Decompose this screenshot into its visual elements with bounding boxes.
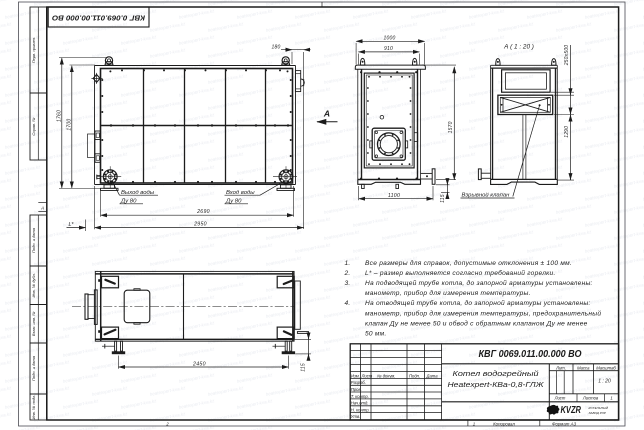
svg-text:heatexpert-kva.kz: heatexpert-kva.kz (526, 112, 563, 124)
svg-text:Лист: Лист (361, 373, 373, 378)
svg-text:heatexpert-kva.kz: heatexpert-kva.kz (410, 112, 447, 124)
svg-text:heatexpert-kva.kz: heatexpert-kva.kz (584, 164, 621, 176)
svg-text:Т. контр.: Т. контр. (351, 394, 369, 399)
svg-text:heatexpert-kva.kz: heatexpert-kva.kz (584, 34, 621, 46)
svg-text:heatexpert-kva.kz: heatexpert-kva.kz (410, 8, 447, 20)
svg-text:heatexpert-kva.kz: heatexpert-kva.kz (323, 125, 360, 137)
svg-text:heatexpert-kva.kz: heatexpert-kva.kz (0, 411, 12, 423)
svg-text:heatexpert-kva.kz: heatexpert-kva.kz (410, 60, 447, 72)
svg-text:heatexpert-kva.kz: heatexpert-kva.kz (4, 216, 41, 228)
svg-text:heatexpert-kva.kz: heatexpert-kva.kz (526, 164, 563, 176)
svg-text:2950: 2950 (193, 222, 207, 228)
svg-text:heatexpert-kva.kz: heatexpert-kva.kz (584, 112, 621, 124)
svg-text:heatexpert-kva.kz: heatexpert-kva.kz (323, 229, 360, 241)
svg-text:heatexpert-kva.kz: heatexpert-kva.kz (381, 21, 418, 33)
svg-text:heatexpert-kva.kz: heatexpert-kva.kz (33, 99, 70, 111)
svg-text:heatexpert-kva.kz: heatexpert-kva.kz (236, 372, 273, 384)
svg-text:heatexpert-kva.kz: heatexpert-kva.kz (149, 385, 186, 397)
svg-text:50 мм.: 50 мм. (365, 330, 387, 337)
svg-text:heatexpert-kva.kz: heatexpert-kva.kz (352, 216, 389, 228)
svg-text:Утв.: Утв. (351, 414, 361, 419)
svg-text:heatexpert-kva.kz: heatexpert-kva.kz (584, 8, 621, 20)
svg-text:heatexpert-kva.kz: heatexpert-kva.kz (62, 164, 99, 176)
svg-text:heatexpert-kva.kz: heatexpert-kva.kz (207, 47, 244, 59)
svg-text:heatexpert-kva.kz: heatexpert-kva.kz (33, 47, 70, 59)
svg-text:heatexpert-kva.kz: heatexpert-kva.kz (178, 34, 215, 46)
svg-text:heatexpert-kva.kz: heatexpert-kva.kz (584, 268, 621, 280)
svg-text:heatexpert-kva.kz: heatexpert-kva.kz (526, 190, 563, 202)
svg-text:heatexpert-kva.kz: heatexpert-kva.kz (0, 385, 12, 397)
svg-text:heatexpert-kva.kz: heatexpert-kva.kz (236, 34, 273, 46)
svg-text:heatexpert-kva.kz: heatexpert-kva.kz (149, 21, 186, 33)
svg-text:heatexpert-kva.kz: heatexpert-kva.kz (120, 34, 157, 46)
svg-text:heatexpert-kva.kz: heatexpert-kva.kz (323, 151, 360, 163)
svg-text:Н. контр.: Н. контр. (351, 407, 370, 412)
svg-text:heatexpert-kva.kz: heatexpert-kva.kz (236, 242, 273, 254)
svg-text:heatexpert-kva.kz: heatexpert-kva.kz (207, 255, 244, 267)
svg-text:heatexpert-kva.kz: heatexpert-kva.kz (323, 281, 360, 293)
svg-text:heatexpert-kva.kz: heatexpert-kva.kz (410, 242, 447, 254)
svg-text:heatexpert-kva.kz: heatexpert-kva.kz (381, 385, 418, 397)
svg-text:heatexpert-kva.kz: heatexpert-kva.kz (410, 138, 447, 150)
svg-text:heatexpert-kva.kz: heatexpert-kva.kz (62, 86, 99, 98)
svg-text:heatexpert-kva.kz: heatexpert-kva.kz (207, 0, 244, 7)
svg-text:180: 180 (272, 45, 281, 51)
svg-text:heatexpert-kva.kz: heatexpert-kva.kz (468, 112, 505, 124)
svg-text:heatexpert-kva.kz: heatexpert-kva.kz (178, 112, 215, 124)
svg-text:heatexpert-kva.kz: heatexpert-kva.kz (149, 255, 186, 267)
svg-text:heatexpert-kva.kz: heatexpert-kva.kz (294, 34, 331, 46)
svg-text:heatexpert-kva.kz: heatexpert-kva.kz (294, 138, 331, 150)
svg-text:heatexpert-kva.kz: heatexpert-kva.kz (4, 8, 41, 20)
svg-text:heatexpert-kva.kz: heatexpert-kva.kz (62, 190, 99, 202)
svg-text:heatexpert-kva.kz: heatexpert-kva.kz (149, 47, 186, 59)
svg-text:heatexpert-kva.kz: heatexpert-kva.kz (497, 125, 534, 137)
svg-text:heatexpert-kva.kz: heatexpert-kva.kz (555, 229, 592, 241)
svg-text:heatexpert-kva.kz: heatexpert-kva.kz (497, 229, 534, 241)
svg-text:heatexpert-kva.kz: heatexpert-kva.kz (0, 73, 12, 85)
svg-text:heatexpert-kva.kz: heatexpert-kva.kz (439, 47, 476, 59)
svg-text:heatexpert-kva.kz: heatexpert-kva.kz (149, 125, 186, 137)
svg-text:heatexpert-kva.kz: heatexpert-kva.kz (555, 47, 592, 59)
svg-text:heatexpert-kva.kz: heatexpert-kva.kz (265, 411, 302, 423)
svg-text:heatexpert-kva.kz: heatexpert-kva.kz (236, 138, 273, 150)
svg-text:heatexpert-kva.kz: heatexpert-kva.kz (265, 255, 302, 267)
svg-text:heatexpert-kva.kz: heatexpert-kva.kz (91, 203, 128, 215)
svg-text:heatexpert-kva.kz: heatexpert-kva.kz (410, 424, 447, 430)
svg-text:heatexpert-kva.kz: heatexpert-kva.kz (62, 60, 99, 72)
svg-text:heatexpert-kva.kz: heatexpert-kva.kz (4, 424, 41, 430)
svg-text:heatexpert-kva.kz: heatexpert-kva.kz (149, 151, 186, 163)
svg-text:1 : 20: 1 : 20 (598, 379, 611, 385)
svg-text:2690: 2690 (196, 209, 210, 215)
svg-text:клапан Ду не менее 50 и обвод: клапан Ду не менее 50 и обвод с обратным… (365, 319, 588, 327)
svg-text:heatexpert-kva.kz: heatexpert-kva.kz (236, 8, 273, 20)
svg-text:heatexpert-kva.kz: heatexpert-kva.kz (33, 281, 70, 293)
svg-text:heatexpert-kva.kz: heatexpert-kva.kz (207, 359, 244, 371)
svg-text:heatexpert-kva.kz: heatexpert-kva.kz (381, 125, 418, 137)
svg-text:heatexpert-kva.kz: heatexpert-kva.kz (0, 281, 12, 293)
svg-text:heatexpert-kva.kz: heatexpert-kva.kz (0, 0, 12, 7)
svg-text:ЗАВОД РЗР: ЗАВОД РЗР (589, 411, 607, 415)
svg-text:heatexpert-kva.kz: heatexpert-kva.kz (0, 125, 12, 137)
svg-text:Взам. инв. №: Взам. инв. № (31, 311, 36, 336)
svg-text:heatexpert-kva.kz: heatexpert-kva.kz (120, 346, 157, 358)
svg-text:heatexpert-kva.kz: heatexpert-kva.kz (294, 268, 331, 280)
svg-text:heatexpert-kva.kz: heatexpert-kva.kz (178, 60, 215, 72)
svg-text:heatexpert-kva.kz: heatexpert-kva.kz (120, 60, 157, 72)
svg-text:heatexpert-kva.kz: heatexpert-kva.kz (4, 164, 41, 176)
svg-text:heatexpert-kva.kz: heatexpert-kva.kz (497, 151, 534, 163)
svg-text:heatexpert-kva.kz: heatexpert-kva.kz (149, 281, 186, 293)
svg-text:heatexpert-kva.kz: heatexpert-kva.kz (323, 203, 360, 215)
svg-text:heatexpert-kva.kz: heatexpert-kva.kz (584, 86, 621, 98)
svg-text:heatexpert-kva.kz: heatexpert-kva.kz (410, 34, 447, 46)
svg-text:Масса: Масса (577, 365, 590, 370)
svg-text:heatexpert-kva.kz: heatexpert-kva.kz (265, 203, 302, 215)
svg-text:Разраб.: Разраб. (351, 380, 366, 385)
svg-text:heatexpert-kva.kz: heatexpert-kva.kz (584, 346, 621, 358)
svg-text:heatexpert-kva.kz: heatexpert-kva.kz (323, 21, 360, 33)
svg-text:На подводящей трубе котла, до: На подводящей трубе котла, до запорной а… (365, 279, 593, 287)
svg-text:heatexpert-kva.kz: heatexpert-kva.kz (120, 294, 157, 306)
svg-text:heatexpert-kva.kz: heatexpert-kva.kz (439, 125, 476, 137)
svg-text:heatexpert-kva.kz: heatexpert-kva.kz (584, 190, 621, 202)
svg-text:heatexpert-kva.kz: heatexpert-kva.kz (294, 190, 331, 202)
svg-text:heatexpert-kva.kz: heatexpert-kva.kz (120, 424, 157, 430)
svg-text:heatexpert-kva.kz: heatexpert-kva.kz (468, 216, 505, 228)
svg-text:heatexpert-kva.kz: heatexpert-kva.kz (120, 372, 157, 384)
svg-text:heatexpert-kva.kz: heatexpert-kva.kz (4, 86, 41, 98)
svg-text:heatexpert-kva.kz: heatexpert-kva.kz (236, 346, 273, 358)
svg-text:heatexpert-kva.kz: heatexpert-kva.kz (352, 424, 389, 430)
svg-text:Лист: Лист (554, 395, 566, 400)
svg-text:Нач.отд.: Нач.отд. (351, 401, 369, 406)
svg-text:heatexpert-kva.kz: heatexpert-kva.kz (236, 216, 273, 228)
svg-text:heatexpert-kva.kz: heatexpert-kva.kz (555, 151, 592, 163)
svg-text:heatexpert-kva.kz: heatexpert-kva.kz (62, 398, 99, 410)
svg-text:L*: L* (68, 222, 74, 228)
svg-text:heatexpert-kva.kz: heatexpert-kva.kz (381, 99, 418, 111)
svg-text:3.: 3. (345, 280, 351, 287)
svg-text:Heatexpert-КВа-0,8-ГЛЖ: Heatexpert-КВа-0,8-ГЛЖ (448, 380, 545, 389)
svg-text:heatexpert-kva.kz: heatexpert-kva.kz (381, 0, 418, 7)
svg-text:heatexpert-kva.kz: heatexpert-kva.kz (120, 398, 157, 410)
svg-text:heatexpert-kva.kz: heatexpert-kva.kz (352, 190, 389, 202)
svg-text:heatexpert-kva.kz: heatexpert-kva.kz (381, 359, 418, 371)
svg-text:heatexpert-kva.kz: heatexpert-kva.kz (178, 372, 215, 384)
svg-text:манометр, прибор для измерения: манометр, прибор для измерения температу… (365, 289, 531, 297)
svg-text:heatexpert-kva.kz: heatexpert-kva.kz (0, 47, 12, 59)
svg-text:heatexpert-kva.kz: heatexpert-kva.kz (149, 0, 186, 7)
svg-text:А: А (40, 206, 44, 211)
svg-text:heatexpert-kva.kz: heatexpert-kva.kz (555, 203, 592, 215)
svg-text:heatexpert-kva.kz: heatexpert-kva.kz (33, 385, 70, 397)
svg-text:heatexpert-kva.kz: heatexpert-kva.kz (120, 138, 157, 150)
svg-text:heatexpert-kva.kz: heatexpert-kva.kz (149, 99, 186, 111)
svg-text:heatexpert-kva.kz: heatexpert-kva.kz (410, 216, 447, 228)
svg-text:heatexpert-kva.kz: heatexpert-kva.kz (91, 99, 128, 111)
svg-text:heatexpert-kva.kz: heatexpert-kva.kz (0, 307, 12, 319)
svg-text:heatexpert-kva.kz: heatexpert-kva.kz (468, 8, 505, 20)
svg-text:heatexpert-kva.kz: heatexpert-kva.kz (62, 346, 99, 358)
svg-text:Пров.: Пров. (351, 387, 362, 392)
svg-text:heatexpert-kva.kz: heatexpert-kva.kz (468, 242, 505, 254)
svg-text:КВГ 0069.011.00.000 ВО: КВГ 0069.011.00.000 ВО (479, 349, 582, 360)
svg-text:heatexpert-kva.kz: heatexpert-kva.kz (207, 385, 244, 397)
svg-text:heatexpert-kva.kz: heatexpert-kva.kz (62, 372, 99, 384)
svg-text:heatexpert-kva.kz: heatexpert-kva.kz (439, 229, 476, 241)
svg-text:heatexpert-kva.kz: heatexpert-kva.kz (555, 21, 592, 33)
svg-text:heatexpert-kva.kz: heatexpert-kva.kz (584, 320, 621, 332)
svg-text:Листов: Листов (582, 395, 599, 400)
svg-text:heatexpert-kva.kz: heatexpert-kva.kz (33, 411, 70, 423)
svg-text:heatexpert-kva.kz: heatexpert-kva.kz (120, 86, 157, 98)
svg-text:КОТЕЛЬНЫЙ: КОТЕЛЬНЫЙ (589, 406, 609, 410)
svg-text:heatexpert-kva.kz: heatexpert-kva.kz (33, 359, 70, 371)
svg-text:heatexpert-kva.kz: heatexpert-kva.kz (149, 307, 186, 319)
svg-text:heatexpert-kva.kz: heatexpert-kva.kz (236, 320, 273, 332)
svg-text:heatexpert-kva.kz: heatexpert-kva.kz (236, 424, 273, 430)
svg-text:heatexpert-kva.kz: heatexpert-kva.kz (410, 164, 447, 176)
svg-text:heatexpert-kva.kz: heatexpert-kva.kz (555, 125, 592, 137)
svg-text:1000: 1000 (384, 36, 396, 42)
svg-text:heatexpert-kva.kz: heatexpert-kva.kz (265, 0, 302, 7)
svg-text:heatexpert-kva.kz: heatexpert-kva.kz (526, 216, 563, 228)
svg-text:heatexpert-kva.kz: heatexpert-kva.kz (0, 21, 12, 33)
svg-text:heatexpert-kva.kz: heatexpert-kva.kz (439, 0, 476, 7)
svg-text:heatexpert-kva.kz: heatexpert-kva.kz (584, 216, 621, 228)
svg-text:heatexpert-kva.kz: heatexpert-kva.kz (555, 177, 592, 189)
svg-text:Выход воды: Выход воды (121, 190, 155, 196)
svg-text:heatexpert-kva.kz: heatexpert-kva.kz (265, 229, 302, 241)
svg-text:heatexpert-kva.kz: heatexpert-kva.kz (178, 138, 215, 150)
svg-text:heatexpert-kva.kz: heatexpert-kva.kz (584, 60, 621, 72)
svg-text:2.: 2. (344, 270, 351, 277)
svg-text:heatexpert-kva.kz: heatexpert-kva.kz (207, 281, 244, 293)
svg-text:heatexpert-kva.kz: heatexpert-kva.kz (120, 112, 157, 124)
svg-text:heatexpert-kva.kz: heatexpert-kva.kz (323, 177, 360, 189)
svg-text:heatexpert-kva.kz: heatexpert-kva.kz (555, 0, 592, 7)
svg-text:heatexpert-kva.kz: heatexpert-kva.kz (439, 411, 476, 423)
svg-text:heatexpert-kva.kz: heatexpert-kva.kz (265, 385, 302, 397)
svg-text:heatexpert-kva.kz: heatexpert-kva.kz (0, 151, 12, 163)
svg-text:heatexpert-kva.kz: heatexpert-kva.kz (149, 73, 186, 85)
svg-text:heatexpert-kva.kz: heatexpert-kva.kz (265, 73, 302, 85)
svg-text:heatexpert-kva.kz: heatexpert-kva.kz (120, 164, 157, 176)
svg-text:heatexpert-kva.kz: heatexpert-kva.kz (584, 424, 621, 430)
svg-text:heatexpert-kva.kz: heatexpert-kva.kz (33, 177, 70, 189)
svg-text:heatexpert-kva.kz: heatexpert-kva.kz (178, 164, 215, 176)
svg-text:heatexpert-kva.kz: heatexpert-kva.kz (381, 229, 418, 241)
svg-text:Копировал: Копировал (493, 421, 515, 426)
svg-text:heatexpert-kva.kz: heatexpert-kva.kz (294, 8, 331, 20)
svg-text:heatexpert-kva.kz: heatexpert-kva.kz (468, 164, 505, 176)
svg-text:heatexpert-kva.kz: heatexpert-kva.kz (294, 320, 331, 332)
svg-text:Подп. и дата: Подп. и дата (31, 227, 36, 253)
svg-text:Масштаб: Масштаб (596, 365, 616, 370)
svg-text:heatexpert-kva.kz: heatexpert-kva.kz (207, 411, 244, 423)
svg-text:heatexpert-kva.kz: heatexpert-kva.kz (555, 73, 592, 85)
svg-text:heatexpert-kva.kz: heatexpert-kva.kz (468, 34, 505, 46)
svg-text:L* – размер выполняется соглас: L* – размер выполняется согласно требова… (365, 269, 556, 277)
svg-text:heatexpert-kva.kz: heatexpert-kva.kz (62, 268, 99, 280)
svg-text:Взрывной клапан: Взрывной клапан (462, 192, 511, 199)
svg-text:heatexpert-kva.kz: heatexpert-kva.kz (120, 216, 157, 228)
svg-text:heatexpert-kva.kz: heatexpert-kva.kz (323, 73, 360, 85)
svg-text:Ду 80: Ду 80 (225, 198, 242, 204)
svg-text:heatexpert-kva.kz: heatexpert-kva.kz (62, 320, 99, 332)
svg-text:heatexpert-kva.kz: heatexpert-kva.kz (497, 203, 534, 215)
svg-text:манометр, прибор для измерения: манометр, прибор для измерения температу… (365, 309, 601, 317)
svg-text:2: 2 (165, 421, 169, 426)
svg-text:heatexpert-kva.kz: heatexpert-kva.kz (91, 359, 128, 371)
svg-text:Справ. №: Справ. № (31, 117, 36, 136)
svg-text:heatexpert-kva.kz: heatexpert-kva.kz (91, 411, 128, 423)
svg-text:heatexpert-kva.kz: heatexpert-kva.kz (0, 333, 12, 345)
svg-text:heatexpert-kva.kz: heatexpert-kva.kz (120, 242, 157, 254)
svg-text:КВГ 0.069.011.00.000 ВО: КВГ 0.069.011.00.000 ВО (51, 14, 145, 21)
svg-text:heatexpert-kva.kz: heatexpert-kva.kz (149, 203, 186, 215)
svg-text:Котел водогрейный: Котел водогрейный (453, 369, 540, 378)
svg-text:heatexpert-kva.kz: heatexpert-kva.kz (439, 151, 476, 163)
svg-text:heatexpert-kva.kz: heatexpert-kva.kz (439, 73, 476, 85)
svg-text:heatexpert-kva.kz: heatexpert-kva.kz (33, 203, 70, 215)
svg-text:heatexpert-kva.kz: heatexpert-kva.kz (381, 203, 418, 215)
svg-text:heatexpert-kva.kz: heatexpert-kva.kz (33, 73, 70, 85)
svg-text:4.: 4. (345, 300, 351, 307)
svg-text:heatexpert-kva.kz: heatexpert-kva.kz (584, 242, 621, 254)
svg-text:2450: 2450 (192, 361, 206, 367)
svg-text:heatexpert-kva.kz: heatexpert-kva.kz (439, 177, 476, 189)
svg-text:heatexpert-kva.kz: heatexpert-kva.kz (439, 203, 476, 215)
svg-text:Изм.: Изм. (351, 373, 360, 378)
svg-text:heatexpert-kva.kz: heatexpert-kva.kz (33, 307, 70, 319)
svg-text:heatexpert-kva.kz: heatexpert-kva.kz (294, 242, 331, 254)
svg-text:heatexpert-kva.kz: heatexpert-kva.kz (584, 138, 621, 150)
svg-text:heatexpert-kva.kz: heatexpert-kva.kz (91, 385, 128, 397)
svg-text:heatexpert-kva.kz: heatexpert-kva.kz (439, 21, 476, 33)
svg-text:На отводящей трубе котла, до з: На отводящей трубе котла, до запорной ар… (365, 299, 591, 307)
svg-text:heatexpert-kva.kz: heatexpert-kva.kz (526, 8, 563, 20)
svg-text:250х500: 250х500 (564, 45, 570, 67)
svg-text:heatexpert-kva.kz: heatexpert-kva.kz (323, 255, 360, 267)
svg-text:heatexpert-kva.kz: heatexpert-kva.kz (207, 203, 244, 215)
svg-text:heatexpert-kva.kz: heatexpert-kva.kz (439, 99, 476, 111)
svg-text:115: 115 (301, 363, 307, 372)
svg-text:heatexpert-kva.kz: heatexpert-kva.kz (62, 138, 99, 150)
svg-text:heatexpert-kva.kz: heatexpert-kva.kz (33, 229, 70, 241)
svg-text:Дата: Дата (426, 373, 439, 378)
svg-text:А ( 1 : 20 ): А ( 1 : 20 ) (503, 43, 534, 50)
svg-text:heatexpert-kva.kz: heatexpert-kva.kz (294, 398, 331, 410)
svg-text:Инв. № подл.: Инв. № подл. (31, 395, 36, 420)
svg-text:heatexpert-kva.kz: heatexpert-kva.kz (294, 346, 331, 358)
svg-text:heatexpert-kva.kz: heatexpert-kva.kz (613, 0, 644, 7)
svg-text:heatexpert-kva.kz: heatexpert-kva.kz (91, 229, 128, 241)
svg-text:1: 1 (473, 421, 476, 426)
svg-text:heatexpert-kva.kz: heatexpert-kva.kz (62, 242, 99, 254)
svg-text:heatexpert-kva.kz: heatexpert-kva.kz (4, 190, 41, 202)
svg-text:heatexpert-kva.kz: heatexpert-kva.kz (62, 34, 99, 46)
svg-text:heatexpert-kva.kz: heatexpert-kva.kz (91, 151, 128, 163)
svg-text:А: А (323, 109, 330, 119)
svg-text:1570: 1570 (448, 121, 454, 133)
svg-text:heatexpert-kva.kz: heatexpert-kva.kz (410, 86, 447, 98)
svg-text:heatexpert-kva.kz: heatexpert-kva.kz (294, 216, 331, 228)
svg-text:heatexpert-kva.kz: heatexpert-kva.kz (323, 307, 360, 319)
svg-text:heatexpert-kva.kz: heatexpert-kva.kz (91, 255, 128, 267)
svg-text:heatexpert-kva.kz: heatexpert-kva.kz (265, 151, 302, 163)
svg-text:heatexpert-kva.kz: heatexpert-kva.kz (497, 21, 534, 33)
svg-text:heatexpert-kva.kz: heatexpert-kva.kz (207, 21, 244, 33)
svg-text:Подп. и дата: Подп. и дата (31, 355, 36, 381)
svg-text:heatexpert-kva.kz: heatexpert-kva.kz (207, 229, 244, 241)
svg-text:heatexpert-kva.kz: heatexpert-kva.kz (555, 99, 592, 111)
svg-text:heatexpert-kva.kz: heatexpert-kva.kz (0, 359, 12, 371)
svg-text:heatexpert-kva.kz: heatexpert-kva.kz (178, 86, 215, 98)
svg-text:heatexpert-kva.kz: heatexpert-kva.kz (178, 424, 215, 430)
svg-text:heatexpert-kva.kz: heatexpert-kva.kz (236, 294, 273, 306)
svg-text:1700: 1700 (66, 119, 72, 131)
svg-text:heatexpert-kva.kz: heatexpert-kva.kz (178, 398, 215, 410)
svg-text:heatexpert-kva.kz: heatexpert-kva.kz (62, 424, 99, 430)
svg-text:heatexpert-kva.kz: heatexpert-kva.kz (236, 164, 273, 176)
svg-text:Лит.: Лит. (555, 365, 566, 370)
svg-text:heatexpert-kva.kz: heatexpert-kva.kz (236, 112, 273, 124)
svg-text:1760: 1760 (56, 110, 62, 122)
svg-text:heatexpert-kva.kz: heatexpert-kva.kz (236, 86, 273, 98)
svg-text:heatexpert-kva.kz: heatexpert-kva.kz (294, 424, 331, 430)
svg-text:heatexpert-kva.kz: heatexpert-kva.kz (33, 255, 70, 267)
svg-text:heatexpert-kva.kz: heatexpert-kva.kz (149, 359, 186, 371)
svg-text:1.: 1. (345, 260, 351, 267)
svg-text:1100: 1100 (388, 193, 400, 199)
svg-text:heatexpert-kva.kz: heatexpert-kva.kz (178, 346, 215, 358)
svg-text:Инв. № дубл.: Инв. № дубл. (31, 273, 36, 298)
svg-text:heatexpert-kva.kz: heatexpert-kva.kz (178, 190, 215, 202)
svg-text:heatexpert-kva.kz: heatexpert-kva.kz (265, 359, 302, 371)
svg-text:heatexpert-kva.kz: heatexpert-kva.kz (236, 60, 273, 72)
svg-text:Перв. примен.: Перв. примен. (31, 37, 36, 64)
svg-text:heatexpert-kva.kz: heatexpert-kva.kz (323, 0, 360, 7)
svg-text:heatexpert-kva.kz: heatexpert-kva.kz (497, 73, 534, 85)
svg-text:heatexpert-kva.kz: heatexpert-kva.kz (0, 177, 12, 189)
svg-text:heatexpert-kva.kz: heatexpert-kva.kz (468, 138, 505, 150)
svg-text:heatexpert-kva.kz: heatexpert-kva.kz (526, 242, 563, 254)
svg-text:Ду 80: Ду 80 (120, 198, 137, 204)
svg-text:KVZR: KVZR (561, 404, 582, 416)
svg-text:910: 910 (384, 46, 393, 52)
svg-text:1290: 1290 (564, 126, 570, 138)
svg-text:heatexpert-kva.kz: heatexpert-kva.kz (178, 8, 215, 20)
svg-text:heatexpert-kva.kz: heatexpert-kva.kz (323, 47, 360, 59)
svg-text:heatexpert-kva.kz: heatexpert-kva.kz (265, 99, 302, 111)
svg-text:1: 1 (610, 395, 612, 400)
svg-text:heatexpert-kva.kz: heatexpert-kva.kz (497, 0, 534, 7)
svg-text:heatexpert-kva.kz: heatexpert-kva.kz (352, 242, 389, 254)
svg-text:heatexpert-kva.kz: heatexpert-kva.kz (178, 242, 215, 254)
svg-text:heatexpert-kva.kz: heatexpert-kva.kz (149, 229, 186, 241)
svg-text:Вход воды: Вход воды (226, 190, 255, 196)
svg-text:heatexpert-kva.kz: heatexpert-kva.kz (207, 307, 244, 319)
svg-text:heatexpert-kva.kz: heatexpert-kva.kz (294, 164, 331, 176)
svg-text:heatexpert-kva.kz: heatexpert-kva.kz (33, 125, 70, 137)
svg-text:heatexpert-kva.kz: heatexpert-kva.kz (468, 398, 505, 410)
svg-text:heatexpert-kva.kz: heatexpert-kva.kz (0, 99, 12, 111)
svg-text:heatexpert-kva.kz: heatexpert-kva.kz (265, 125, 302, 137)
svg-text:heatexpert-kva.kz: heatexpert-kva.kz (352, 8, 389, 20)
